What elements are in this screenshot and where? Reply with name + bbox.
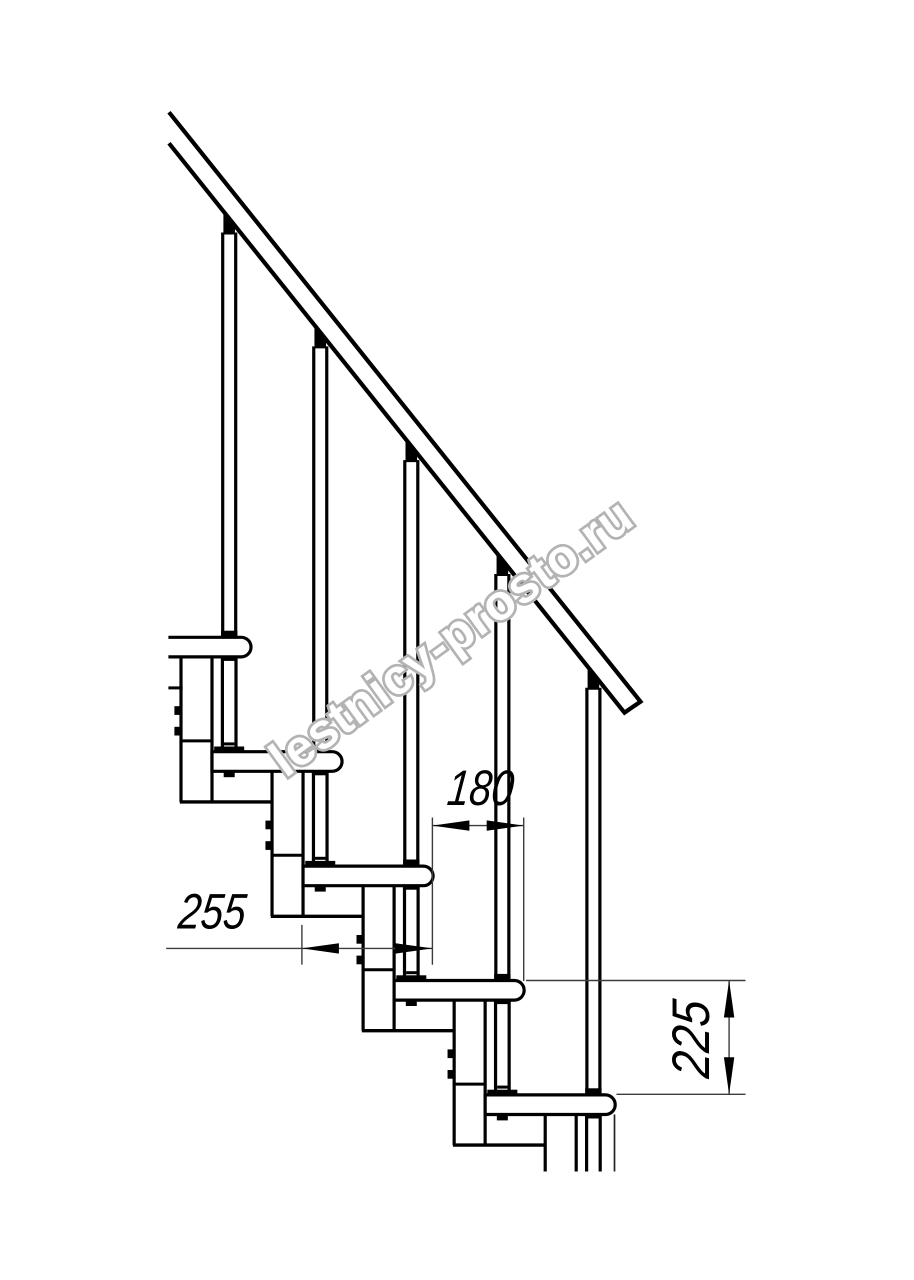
svg-text:225: 225 — [662, 997, 721, 1081]
svg-text:180: 180 — [445, 760, 517, 816]
svg-text:255: 255 — [175, 884, 249, 940]
